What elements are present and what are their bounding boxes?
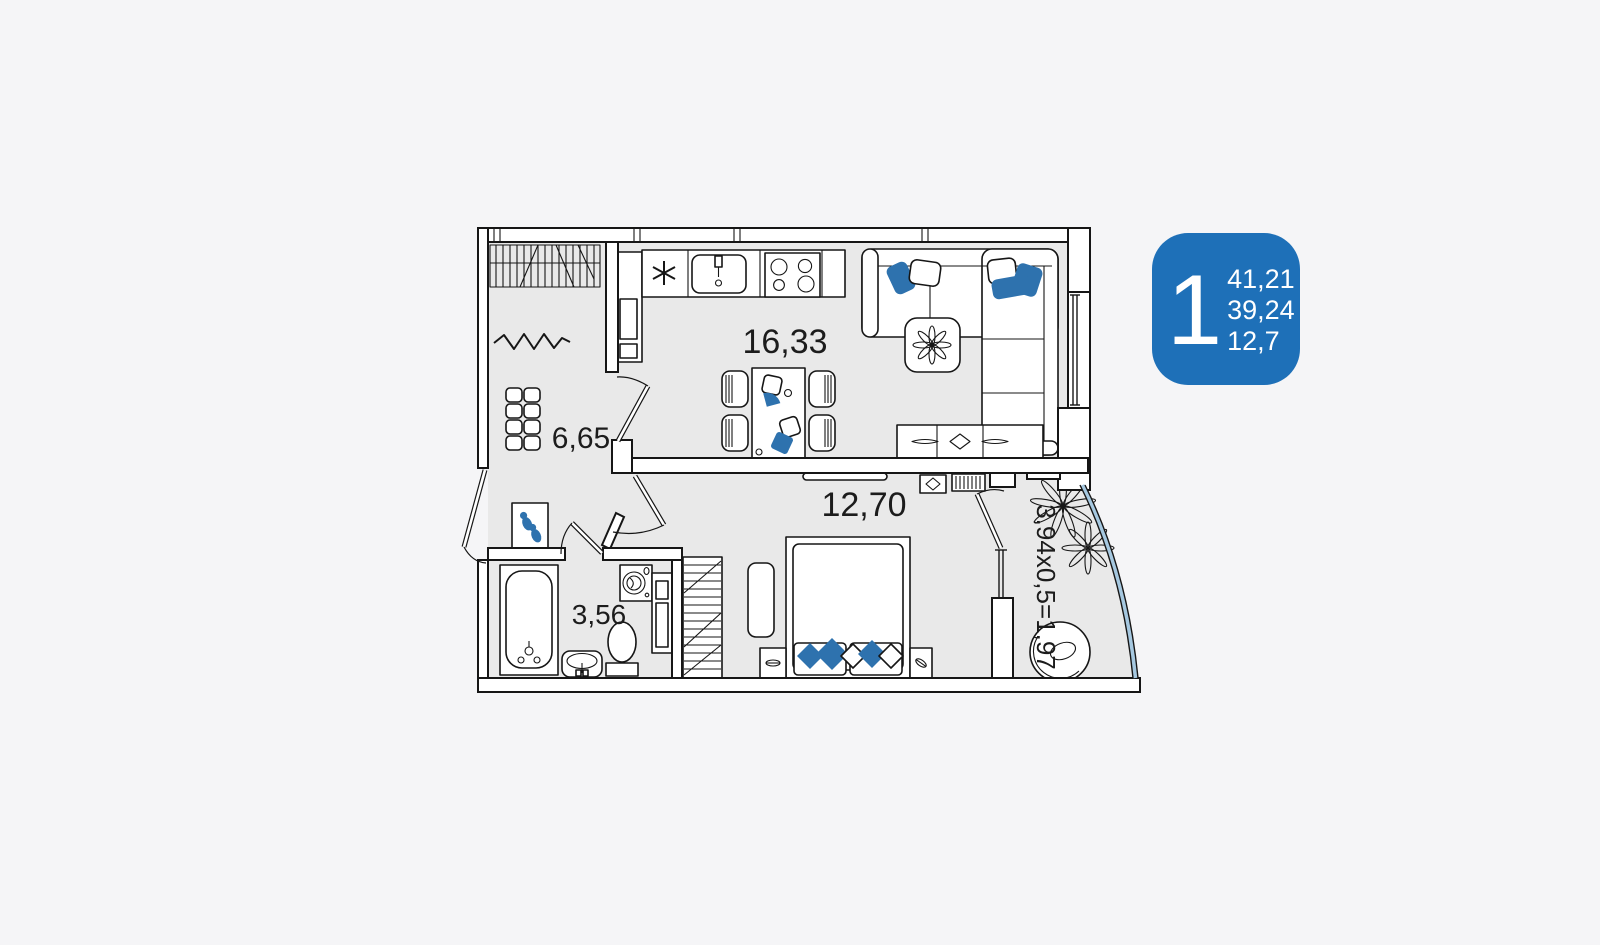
rooms-count: 1 <box>1167 260 1220 359</box>
wardrobe <box>683 557 722 678</box>
area-value: 12,7 <box>1227 326 1295 357</box>
chair <box>809 371 835 407</box>
apartment-info-badge: 1 41,21 39,24 12,7 <box>1152 233 1300 385</box>
page: 16,33 6,65 12,70 3,56 3,94x0,5=1,97 1 41… <box>0 0 1600 945</box>
room-label-bathroom: 3,56 <box>572 599 627 630</box>
coffee-table <box>905 318 960 372</box>
chair <box>722 415 748 451</box>
bed <box>786 537 910 678</box>
chair <box>809 415 835 451</box>
room-label-kitchen-living: 16,33 <box>742 323 827 361</box>
kitchen-sink <box>692 255 746 293</box>
entrance-door <box>464 470 486 563</box>
balcony-dimensions-label: 3,94x0,5=1,97 <box>1031 504 1061 670</box>
toilet <box>606 622 638 676</box>
area-value: 41,21 <box>1227 264 1295 295</box>
dresser <box>920 475 946 493</box>
tv-stand <box>897 425 1043 458</box>
fridge <box>615 252 642 362</box>
nightstand <box>760 648 786 678</box>
nightstand <box>910 648 932 678</box>
area-values: 41,21 39,24 12,7 <box>1227 264 1295 357</box>
bathroom-shelf <box>652 573 672 653</box>
washing-machine <box>620 565 652 601</box>
floor-plan: 16,33 6,65 12,70 3,56 3,94x0,5=1,97 <box>460 215 1160 715</box>
radiator <box>952 474 985 491</box>
stove <box>765 253 820 297</box>
room-label-bedroom: 12,70 <box>821 486 906 524</box>
bedside-rug <box>748 563 774 637</box>
room-label-hallway: 6,65 <box>552 422 610 455</box>
wash-basin <box>562 651 602 677</box>
entry-rug-slippers <box>512 503 548 549</box>
tv <box>803 473 887 480</box>
area-value: 39,24 <box>1227 295 1295 326</box>
chair <box>722 371 748 407</box>
bathtub <box>500 565 558 675</box>
